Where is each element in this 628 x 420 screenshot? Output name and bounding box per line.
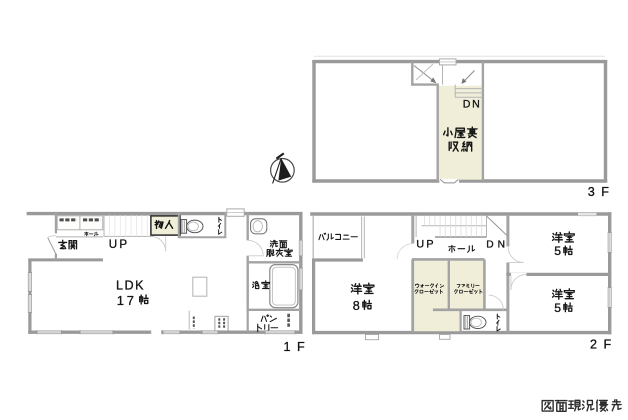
svg-text:8: 8: [353, 299, 360, 313]
svg-text:UP: UP: [109, 238, 130, 251]
svg-text:LDK: LDK: [116, 278, 145, 292]
svg-text:5: 5: [554, 244, 561, 258]
svg-text:1: 1: [117, 293, 124, 308]
svg-text:2 F: 2 F: [590, 337, 613, 351]
svg-text:5: 5: [554, 301, 561, 315]
svg-text:3 F: 3 F: [588, 185, 611, 199]
svg-text:1 F: 1 F: [284, 340, 307, 354]
svg-text:UP: UP: [416, 238, 435, 250]
svg-text:7: 7: [127, 293, 134, 308]
svg-text:D N: D N: [486, 239, 505, 250]
svg-text:DN: DN: [463, 99, 482, 111]
